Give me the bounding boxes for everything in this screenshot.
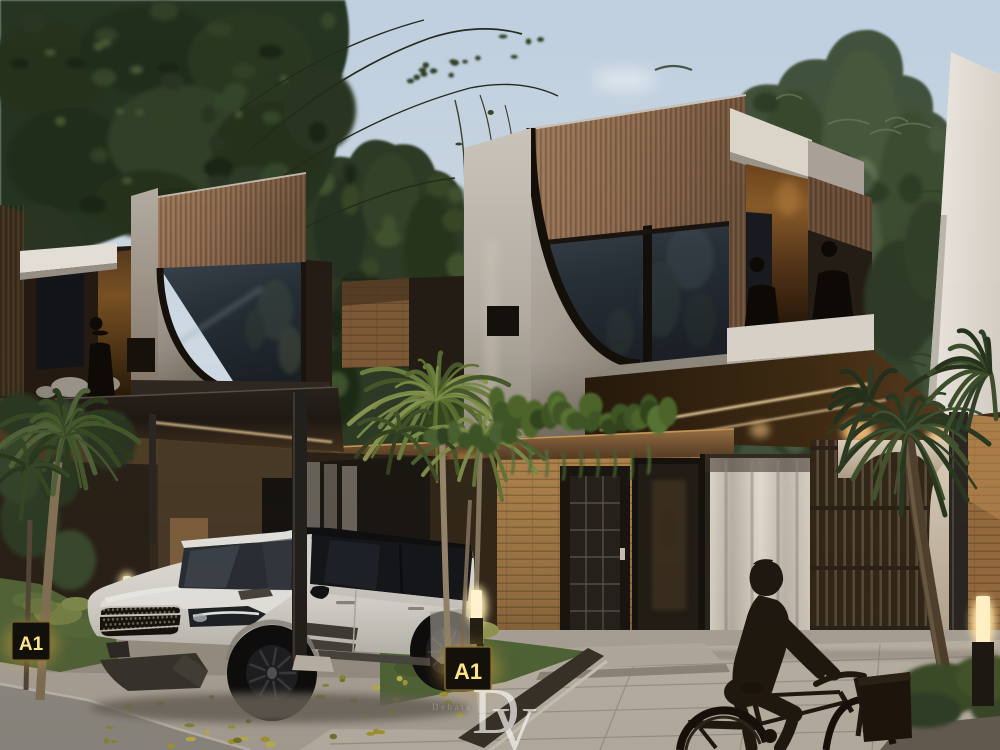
svg-text:V: V <box>492 696 537 750</box>
svg-text:A1: A1 <box>19 634 44 655</box>
svg-text:Dehata: Dehata <box>432 702 472 712</box>
